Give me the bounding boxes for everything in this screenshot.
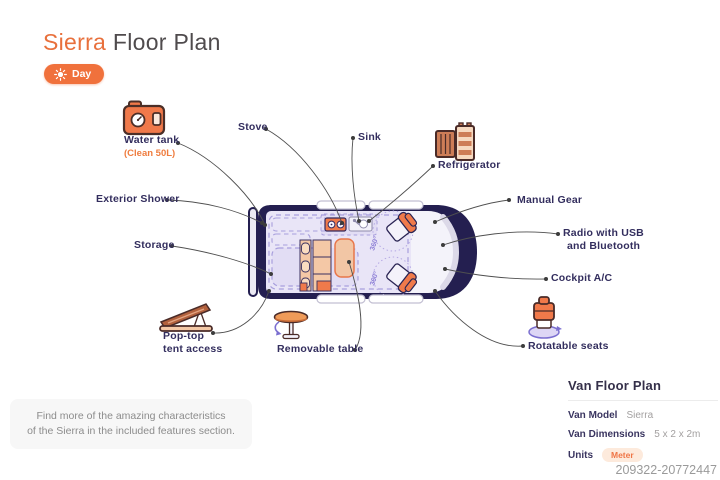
van-details-panel: Van Floor Plan Van Model Sierra Van Dime… [568,378,718,470]
label-water-tank[interactable]: Water tank [124,134,179,147]
van-dimensions-label: Van Dimensions [568,429,645,440]
watermark-id: 209322-20772447 [616,463,718,477]
label-sink[interactable]: Sink [358,131,381,144]
removable-table-icon [269,309,313,343]
van-dimensions-value: 5 x 2 x 2m [654,429,700,440]
label-exterior-shower[interactable]: Exterior Shower [96,193,180,206]
units-label: Units [568,450,593,461]
van-model-value: Sierra [626,410,653,421]
label-rotatable-seats[interactable]: Rotatable seats [528,340,609,353]
note-line1: Find more of the amazing characteristics [27,409,235,424]
label-storage[interactable]: Storage [134,239,175,252]
label-radio-line2: and Bluetooth [567,240,644,253]
units-badge[interactable]: Meter [602,448,643,462]
label-stove[interactable]: Stove [238,121,268,134]
refrigerator-icon [434,122,478,162]
connector-rotatable-seats [435,291,523,346]
connector-exterior-shower [167,200,262,223]
row-units: Units Meter [568,448,718,462]
note-line2: of the Sierra in the included features s… [27,424,235,439]
label-radio-line1: Radio with USB [563,227,644,240]
info-note: Find more of the amazing characteristics… [10,399,252,449]
connector-pop-top [213,291,269,333]
bed-unit [300,240,331,291]
label-water-tank-capacity: (Clean 50L) [124,148,175,159]
removable-table-shape [335,239,354,277]
label-pop-top-line1: Pop-top [163,330,222,343]
panel-divider [568,400,718,401]
label-manual-gear[interactable]: Manual Gear [517,194,582,207]
van-rear-door [249,208,257,296]
row-van-dimensions: Van Dimensions 5 x 2 x 2m [568,429,718,440]
pop-top-tent-icon [158,301,214,333]
van-illustration: 360° 360° [249,201,477,303]
label-radio[interactable]: Radio with USB and Bluetooth [563,227,644,253]
label-removable-table[interactable]: Removable table [277,343,363,356]
floor-plan-page: Sierra Floor Plan Day [0,0,720,480]
label-pop-top[interactable]: Pop-top tent access [163,330,222,356]
water-tank-icon [122,100,168,136]
row-van-model: Van Model Sierra [568,410,718,421]
label-pop-top-line2: tent access [163,343,222,356]
panel-heading: Van Floor Plan [568,378,718,393]
rotatable-seat-icon [523,295,565,341]
label-cockpit-ac[interactable]: Cockpit A/C [551,272,612,285]
van-model-label: Van Model [568,410,617,421]
label-refrigerator[interactable]: Refrigerator [438,159,501,172]
